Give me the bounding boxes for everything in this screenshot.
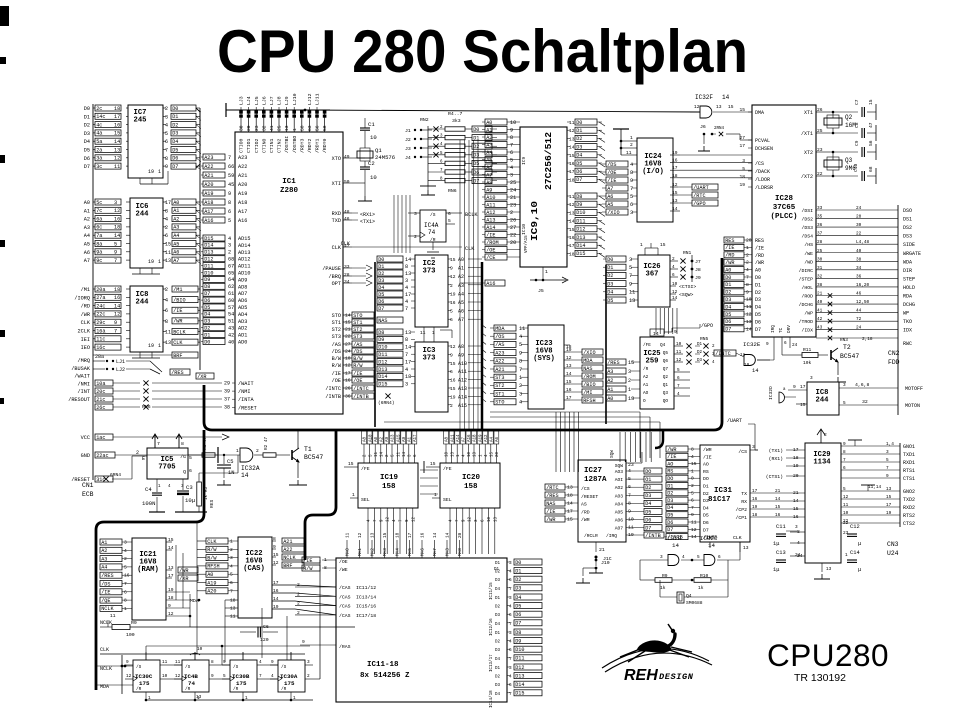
svg-text:5: 5: [697, 555, 700, 560]
svg-text:12: 12: [387, 516, 391, 522]
svg-text:22: 22: [510, 232, 516, 238]
svg-text:(RAM): (RAM): [137, 566, 159, 574]
svg-text:19: 19: [148, 259, 154, 265]
svg-text:/BIO: /BIO: [173, 297, 185, 303]
svg-text:1: 1: [628, 387, 631, 393]
svg-text:/RES: /RES: [171, 370, 183, 376]
svg-text:D9: D9: [576, 202, 582, 208]
svg-text:D13: D13: [576, 235, 585, 241]
svg-text:(CTS1): (CTS1): [766, 474, 783, 480]
svg-text:TXD2: TXD2: [903, 497, 915, 503]
svg-text:D1: D1: [755, 282, 761, 288]
svg-text:14: 14: [569, 145, 575, 151]
svg-text:/CAS: /CAS: [339, 604, 351, 610]
svg-text:IC32C: IC32C: [700, 535, 718, 542]
svg-text:18: 18: [752, 513, 758, 518]
svg-text:D13: D13: [378, 367, 387, 373]
svg-text:15: 15: [348, 461, 354, 467]
svg-text:FDD: FDD: [888, 359, 900, 366]
svg-text:15: 15: [569, 153, 575, 159]
svg-text:4: 4: [677, 392, 680, 397]
svg-text:D10: D10: [515, 647, 524, 653]
svg-text:A6: A6: [173, 250, 179, 256]
svg-text:J3: J3: [405, 146, 411, 152]
svg-text:GNO2: GNO2: [903, 489, 915, 495]
svg-text:Z280: Z280: [280, 187, 299, 195]
svg-text:/DSTBO: /DSTBO: [292, 136, 298, 153]
svg-text:A3: A3: [101, 556, 107, 562]
svg-text:18: 18: [230, 598, 236, 604]
svg-text:175: 175: [139, 680, 150, 687]
svg-text:BC547: BC547: [304, 454, 323, 461]
svg-text:/R: /R: [643, 367, 649, 372]
svg-text:MDA: MDA: [190, 598, 199, 604]
svg-text:/WAIT: /WAIT: [238, 381, 254, 387]
svg-text:NCLK: NCLK: [100, 666, 112, 672]
svg-text:16: 16: [421, 532, 426, 538]
svg-text:<TX1>: <TX1>: [360, 219, 375, 225]
svg-text:LJ9: LJ9: [284, 96, 290, 105]
svg-text:/IE: /IE: [725, 245, 734, 251]
svg-text:D12: D12: [378, 359, 387, 365]
svg-text:65: 65: [228, 270, 234, 276]
svg-text:/G: /G: [180, 454, 186, 460]
svg-text:D5: D5: [473, 161, 479, 167]
svg-text:1: 1: [352, 492, 355, 498]
svg-text:<SQW>: <SQW>: [679, 292, 694, 298]
svg-text:20: 20: [510, 240, 516, 246]
svg-text:IC32A: IC32A: [241, 465, 260, 472]
svg-text:5: 5: [228, 218, 231, 224]
svg-text:D9: D9: [378, 337, 384, 343]
svg-text:29c: 29c: [96, 320, 105, 326]
svg-text:DS3: DS3: [903, 234, 912, 240]
svg-text:XT1: XT1: [804, 110, 813, 116]
svg-text:58: 58: [322, 125, 328, 131]
svg-text:TC: TC: [779, 327, 784, 333]
svg-text:AD6: AD6: [238, 298, 247, 304]
svg-text:5a: 5a: [96, 139, 102, 145]
svg-text:C12: C12: [850, 524, 860, 530]
svg-text:NAS: NAS: [583, 366, 592, 372]
svg-text:D0: D0: [576, 120, 582, 126]
svg-text:Q5: Q5: [663, 351, 669, 356]
svg-text:7: 7: [259, 674, 262, 679]
svg-text:11: 11: [114, 164, 120, 170]
svg-text:12: 12: [694, 104, 700, 110]
svg-text:10: 10: [488, 516, 492, 522]
svg-text:42: 42: [228, 332, 234, 338]
svg-text:7: 7: [230, 588, 233, 594]
svg-text:MA8: MA8: [458, 548, 463, 556]
svg-text:/RESOUT: /RESOUT: [68, 397, 90, 403]
svg-text:27: 27: [510, 225, 516, 231]
svg-text:2CLK: 2CLK: [78, 329, 91, 335]
svg-text:IEO: IEO: [81, 345, 90, 351]
svg-text:A0: A0: [486, 120, 492, 126]
svg-text:A14: A14: [458, 394, 467, 400]
svg-text:2: 2: [228, 250, 231, 256]
svg-text:D5: D5: [667, 513, 673, 519]
svg-text:A17: A17: [238, 209, 247, 215]
svg-text:IC4A: IC4A: [424, 222, 439, 229]
svg-text:7: 7: [165, 148, 168, 154]
svg-text:A20: A20: [204, 182, 213, 188]
svg-text:AD3: AD3: [238, 319, 247, 325]
svg-text:4: 4: [509, 605, 512, 610]
svg-text:A23: A23: [495, 350, 504, 356]
svg-text:1: 1: [545, 269, 548, 275]
svg-text:A2: A2: [607, 378, 613, 384]
svg-text:59: 59: [228, 173, 234, 179]
svg-text:16: 16: [114, 122, 120, 128]
svg-text:RDA: RDA: [903, 294, 912, 300]
svg-text:A11: A11: [486, 202, 495, 208]
svg-text:/S: /S: [430, 212, 436, 218]
svg-text:62: 62: [228, 284, 234, 290]
svg-text:CLK: CLK: [81, 320, 91, 326]
svg-text:4: 4: [165, 123, 168, 129]
svg-text:A2: A2: [486, 135, 492, 141]
svg-text:20: 20: [246, 125, 252, 131]
svg-text:9: 9: [793, 384, 796, 390]
svg-text:15: 15: [345, 320, 351, 326]
svg-text:DIR: DIR: [903, 268, 912, 274]
svg-text:D3: D3: [697, 359, 703, 363]
svg-text:AD8: AD8: [238, 284, 247, 290]
svg-text:7: 7: [124, 581, 127, 587]
svg-text:/RTC: /RTC: [546, 485, 558, 491]
svg-text:LJ11: LJ11: [315, 93, 321, 105]
svg-text:/RTC: /RTC: [693, 193, 705, 199]
svg-text:D0: D0: [607, 257, 613, 263]
svg-text:20: 20: [458, 532, 463, 538]
svg-text:4: 4: [405, 285, 408, 291]
svg-text:11: 11: [569, 120, 575, 126]
svg-text:10: 10: [197, 647, 203, 652]
svg-text:/WR: /WR: [725, 260, 734, 266]
svg-text:D15: D15: [378, 382, 387, 388]
svg-text:30: 30: [239, 125, 245, 131]
svg-text:/CP1: /CP1: [735, 515, 747, 521]
svg-text:D3: D3: [703, 498, 709, 504]
svg-text:8: 8: [510, 135, 513, 141]
svg-text:373: 373: [423, 268, 436, 276]
svg-text:13: 13: [826, 567, 832, 572]
svg-text:7: 7: [114, 258, 117, 264]
svg-text:24M576: 24M576: [375, 154, 395, 161]
svg-text:11,14: 11,14: [868, 485, 882, 490]
svg-text:8: 8: [181, 441, 184, 447]
svg-text:6: 6: [124, 589, 127, 595]
svg-text:3a: 3a: [96, 156, 102, 162]
svg-text:/M1: /M1: [81, 287, 90, 293]
svg-text:D1: D1: [703, 484, 709, 490]
svg-text:D14: D14: [204, 243, 213, 249]
svg-text:32: 32: [862, 399, 868, 405]
svg-text:17: 17: [114, 114, 120, 120]
svg-text:/XIO: /XIO: [583, 350, 595, 356]
svg-text:D8: D8: [204, 284, 210, 290]
svg-text:J7: J7: [695, 259, 701, 265]
svg-text:10a: 10a: [96, 381, 105, 387]
svg-text:47: 47: [868, 122, 874, 128]
svg-text:/RDY0: /RDY0: [322, 138, 328, 153]
svg-text:10: 10: [744, 363, 750, 368]
svg-text:/WR: /WR: [173, 319, 182, 325]
svg-text:LJ12: LJ12: [307, 93, 313, 105]
svg-text:C2: C2: [368, 160, 375, 167]
svg-text:A3: A3: [458, 283, 464, 289]
svg-text:B/W: B/W: [353, 356, 363, 362]
svg-text:/WR: /WR: [755, 260, 764, 266]
svg-text:8: 8: [519, 359, 522, 365]
svg-text:A6: A6: [607, 194, 613, 200]
svg-text:17: 17: [345, 371, 351, 377]
svg-text:11: 11: [230, 614, 236, 620]
svg-text:/RESET: /RESET: [238, 405, 257, 411]
svg-text:15: 15: [383, 532, 388, 538]
svg-text:46: 46: [344, 216, 350, 222]
svg-text:A20: A20: [238, 182, 247, 188]
svg-text:2: 2: [519, 383, 522, 389]
svg-text:15: 15: [672, 190, 678, 196]
svg-text:/LDRSR: /LDRSR: [755, 185, 773, 191]
svg-text:IC27: IC27: [584, 467, 602, 475]
svg-text:MA6: MA6: [421, 548, 426, 556]
svg-text:1: 1: [746, 245, 749, 251]
svg-text:D3: D3: [667, 498, 673, 504]
svg-text:6: 6: [509, 613, 512, 618]
svg-text:2a: 2a: [96, 147, 102, 153]
svg-text:18: 18: [739, 174, 745, 180]
svg-text:13: 13: [569, 210, 575, 216]
svg-text:12: 12: [168, 611, 174, 617]
svg-text:/HS: /HS: [804, 242, 813, 248]
svg-text:19: 19: [672, 150, 678, 156]
svg-text:VCC: VCC: [81, 435, 90, 441]
svg-text:16: 16: [752, 497, 758, 502]
svg-text:A0: A0: [207, 572, 213, 578]
svg-text:13: 13: [284, 125, 290, 131]
svg-text:R/W: R/W: [207, 547, 217, 553]
svg-text:15: 15: [800, 402, 806, 408]
svg-text:11: 11: [569, 194, 575, 200]
svg-text:10k: 10k: [803, 360, 812, 366]
svg-text:A1: A1: [607, 387, 613, 393]
svg-text:72: 72: [856, 317, 862, 322]
svg-text:11: 11: [691, 520, 697, 526]
svg-text:D3: D3: [755, 297, 761, 303]
svg-text:A16: A16: [238, 218, 247, 224]
svg-text:17: 17: [886, 503, 892, 508]
svg-text:D2: D2: [172, 122, 178, 128]
svg-text:5: 5: [886, 458, 889, 463]
svg-text:9: 9: [165, 164, 168, 170]
svg-text:27: 27: [345, 342, 351, 348]
svg-text:A20: A20: [207, 589, 216, 595]
svg-text:2: 2: [136, 450, 139, 456]
svg-text:12: 12: [676, 358, 682, 363]
svg-text:9: 9: [223, 660, 226, 665]
svg-text:2: 2: [510, 210, 513, 216]
svg-text:D0: D0: [725, 275, 731, 281]
svg-text:R2 47: R2 47: [264, 436, 269, 450]
svg-text:64: 64: [228, 277, 234, 283]
svg-text:9a: 9a: [96, 250, 102, 256]
svg-text:/INTC: /INTC: [325, 386, 341, 392]
svg-text:A17: A17: [204, 209, 213, 215]
svg-text:D4: D4: [378, 285, 384, 291]
svg-text:66: 66: [228, 164, 234, 170]
svg-text:9: 9: [168, 603, 171, 609]
svg-text:ST2: ST2: [495, 383, 504, 389]
svg-text:13: 13: [405, 330, 411, 336]
svg-text:3c: 3c: [96, 164, 102, 170]
svg-text:D6: D6: [172, 156, 178, 162]
svg-text:24: 24: [792, 343, 798, 348]
svg-text:1k: 1k: [660, 585, 666, 591]
svg-text:/CP2: /CP2: [735, 507, 747, 513]
svg-text:RFSH: RFSH: [207, 564, 219, 570]
svg-text:74: 74: [188, 680, 195, 687]
svg-text:3: 3: [124, 540, 127, 546]
svg-text:14: 14: [241, 472, 249, 479]
svg-text:10: 10: [345, 356, 351, 362]
svg-text:1: 1: [630, 135, 633, 141]
svg-text:D3: D3: [84, 131, 90, 137]
svg-text:IC28: IC28: [775, 195, 794, 203]
svg-text:D6: D6: [473, 170, 479, 176]
svg-text:13: 13: [165, 258, 171, 264]
svg-text:50: 50: [344, 179, 350, 185]
svg-text:/S: /S: [136, 665, 142, 670]
svg-text:259: 259: [646, 358, 659, 366]
svg-text:D2: D2: [378, 271, 384, 277]
svg-text:14: 14: [746, 326, 752, 332]
svg-text:D7: D7: [84, 164, 90, 170]
svg-text:D1: D1: [495, 597, 501, 601]
svg-text:14: 14: [433, 532, 438, 538]
svg-text:AO: AO: [643, 391, 649, 396]
svg-text:A2: A2: [458, 274, 464, 280]
svg-text:RS: RS: [703, 469, 709, 475]
svg-text:AS: AS: [581, 502, 587, 508]
svg-text:D7: D7: [204, 291, 210, 297]
svg-text:8: 8: [228, 200, 231, 206]
svg-text:O1: O1: [645, 477, 651, 483]
svg-text:MA3: MA3: [446, 548, 451, 556]
svg-text:A2: A2: [643, 375, 649, 380]
svg-text:D5: D5: [576, 161, 582, 167]
svg-text:CPU280: CPU280: [767, 637, 889, 673]
svg-text:CTIO2: CTIO2: [254, 138, 260, 153]
svg-text:/ROM: /ROM: [583, 374, 595, 380]
svg-text:A8: A8: [458, 344, 464, 350]
svg-text:1: 1: [236, 448, 239, 454]
svg-text:LJ6: LJ6: [261, 96, 267, 105]
svg-text:A12: A12: [458, 378, 467, 384]
svg-text:D1: D1: [697, 343, 703, 347]
svg-text:11: 11: [165, 250, 171, 256]
svg-text:WP: WP: [903, 311, 909, 317]
svg-text:8: 8: [630, 170, 633, 176]
svg-text:4: 4: [509, 570, 512, 575]
svg-text:7a: 7a: [96, 233, 102, 239]
svg-text:/INTB: /INTB: [325, 394, 341, 400]
svg-text:/RD: /RD: [755, 253, 764, 259]
svg-text:B/W: B/W: [332, 356, 342, 362]
svg-text:14: 14: [345, 313, 351, 319]
svg-text:A18: A18: [204, 200, 213, 206]
svg-text:/IE: /IE: [332, 371, 341, 377]
svg-text:7: 7: [510, 142, 513, 148]
svg-text:14: 14: [691, 534, 697, 540]
svg-text:9: 9: [843, 442, 846, 447]
svg-text:IC4B: IC4B: [184, 673, 198, 680]
svg-text:D7: D7: [576, 177, 582, 183]
svg-text:D1: D1: [204, 332, 210, 338]
svg-text:/CAS: /CAS: [339, 585, 351, 591]
svg-text:NAS: NAS: [546, 501, 555, 507]
svg-text:6: 6: [677, 376, 680, 381]
svg-text:/DS4: /DS4: [801, 234, 813, 240]
svg-text:C6: C6: [263, 624, 269, 630]
svg-text:6c: 6c: [96, 225, 102, 231]
svg-text:3: 3: [843, 383, 846, 388]
svg-text:/XT1: /XT1: [801, 131, 813, 137]
svg-text:6: 6: [509, 578, 512, 583]
svg-text:/IE: /IE: [703, 454, 712, 460]
svg-text:RXD1: RXD1: [903, 460, 915, 466]
svg-text:2: 2: [297, 610, 300, 616]
svg-text:D0: D0: [755, 275, 761, 281]
svg-text:D3: D3: [576, 144, 582, 150]
svg-text:7: 7: [630, 186, 633, 192]
svg-text:DCHSEN: DCHSEN: [755, 146, 773, 152]
svg-text:D11: D11: [515, 656, 524, 662]
svg-text:14: 14: [273, 596, 279, 602]
svg-text:<CTSI>: <CTSI>: [679, 284, 696, 290]
svg-text:5: 5: [630, 194, 633, 200]
svg-text:STO: STO: [495, 400, 504, 406]
svg-text:14: 14: [672, 206, 678, 212]
svg-text:C9: C9: [854, 140, 860, 146]
svg-text:/HOL: /HOL: [801, 285, 813, 291]
svg-text:15: 15: [775, 505, 781, 510]
svg-text:26: 26: [345, 386, 351, 392]
svg-text:CN2: CN2: [888, 350, 900, 357]
svg-text:9: 9: [211, 674, 214, 679]
svg-text:BRF: BRF: [173, 353, 182, 359]
svg-text:16: 16: [672, 158, 678, 164]
svg-text:12: 12: [691, 527, 697, 533]
svg-text:/CS: /CS: [755, 161, 764, 167]
svg-text:15: 15: [450, 361, 456, 367]
svg-text:D2: D2: [495, 641, 501, 645]
svg-text:IC32B: IC32B: [664, 535, 682, 542]
svg-text:4: 4: [271, 674, 274, 679]
svg-text:D14: D14: [515, 682, 524, 688]
svg-text:A0: A0: [173, 200, 179, 206]
svg-text:SIDE: SIDE: [903, 242, 915, 248]
svg-text:/FE: /FE: [443, 466, 452, 472]
svg-text:/CE: /CE: [486, 255, 495, 261]
svg-text:/XIO: /XIO: [607, 210, 619, 216]
svg-text:6: 6: [228, 209, 231, 215]
svg-text:/STEP: /STEP: [799, 276, 814, 282]
svg-text:7: 7: [114, 328, 117, 334]
